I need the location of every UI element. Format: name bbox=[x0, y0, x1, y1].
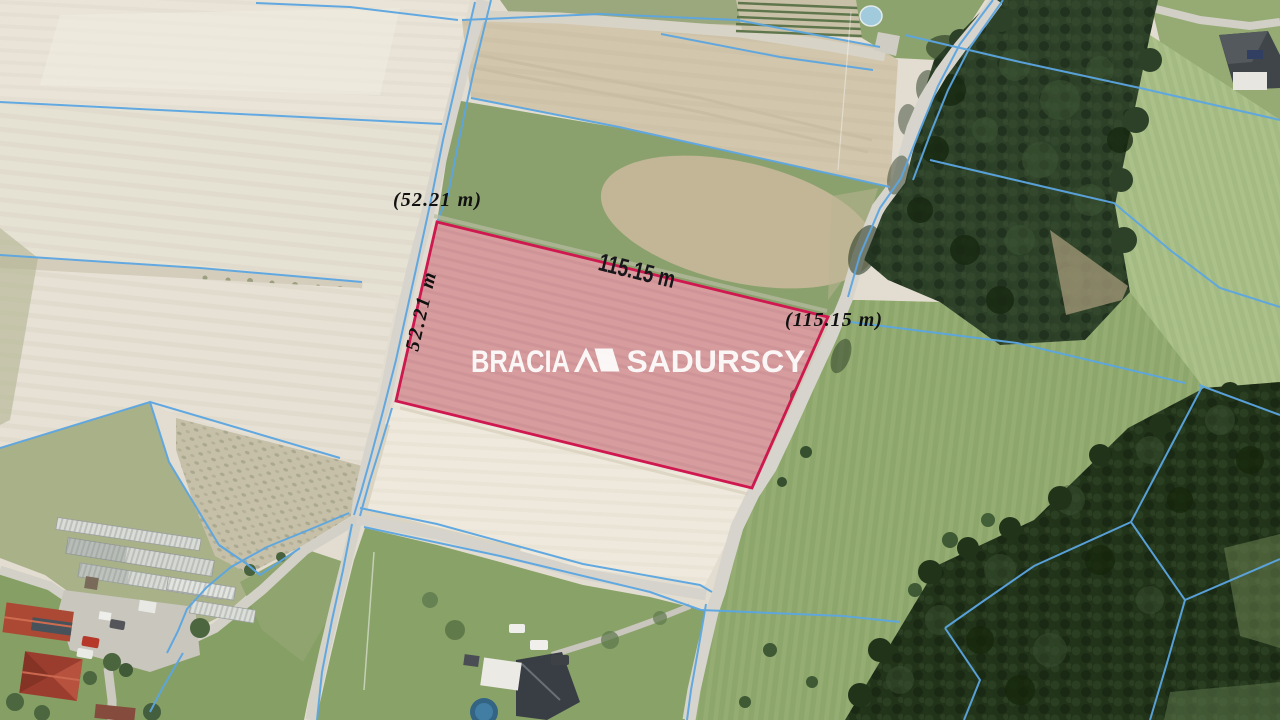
svg-text:SADURSCY: SADURSCY bbox=[627, 343, 806, 379]
svg-text:(115.15 m): (115.15 m) bbox=[785, 309, 882, 331]
svg-text:BRACIA: BRACIA bbox=[471, 343, 570, 379]
svg-text:(52.21 m): (52.21 m) bbox=[393, 189, 481, 211]
